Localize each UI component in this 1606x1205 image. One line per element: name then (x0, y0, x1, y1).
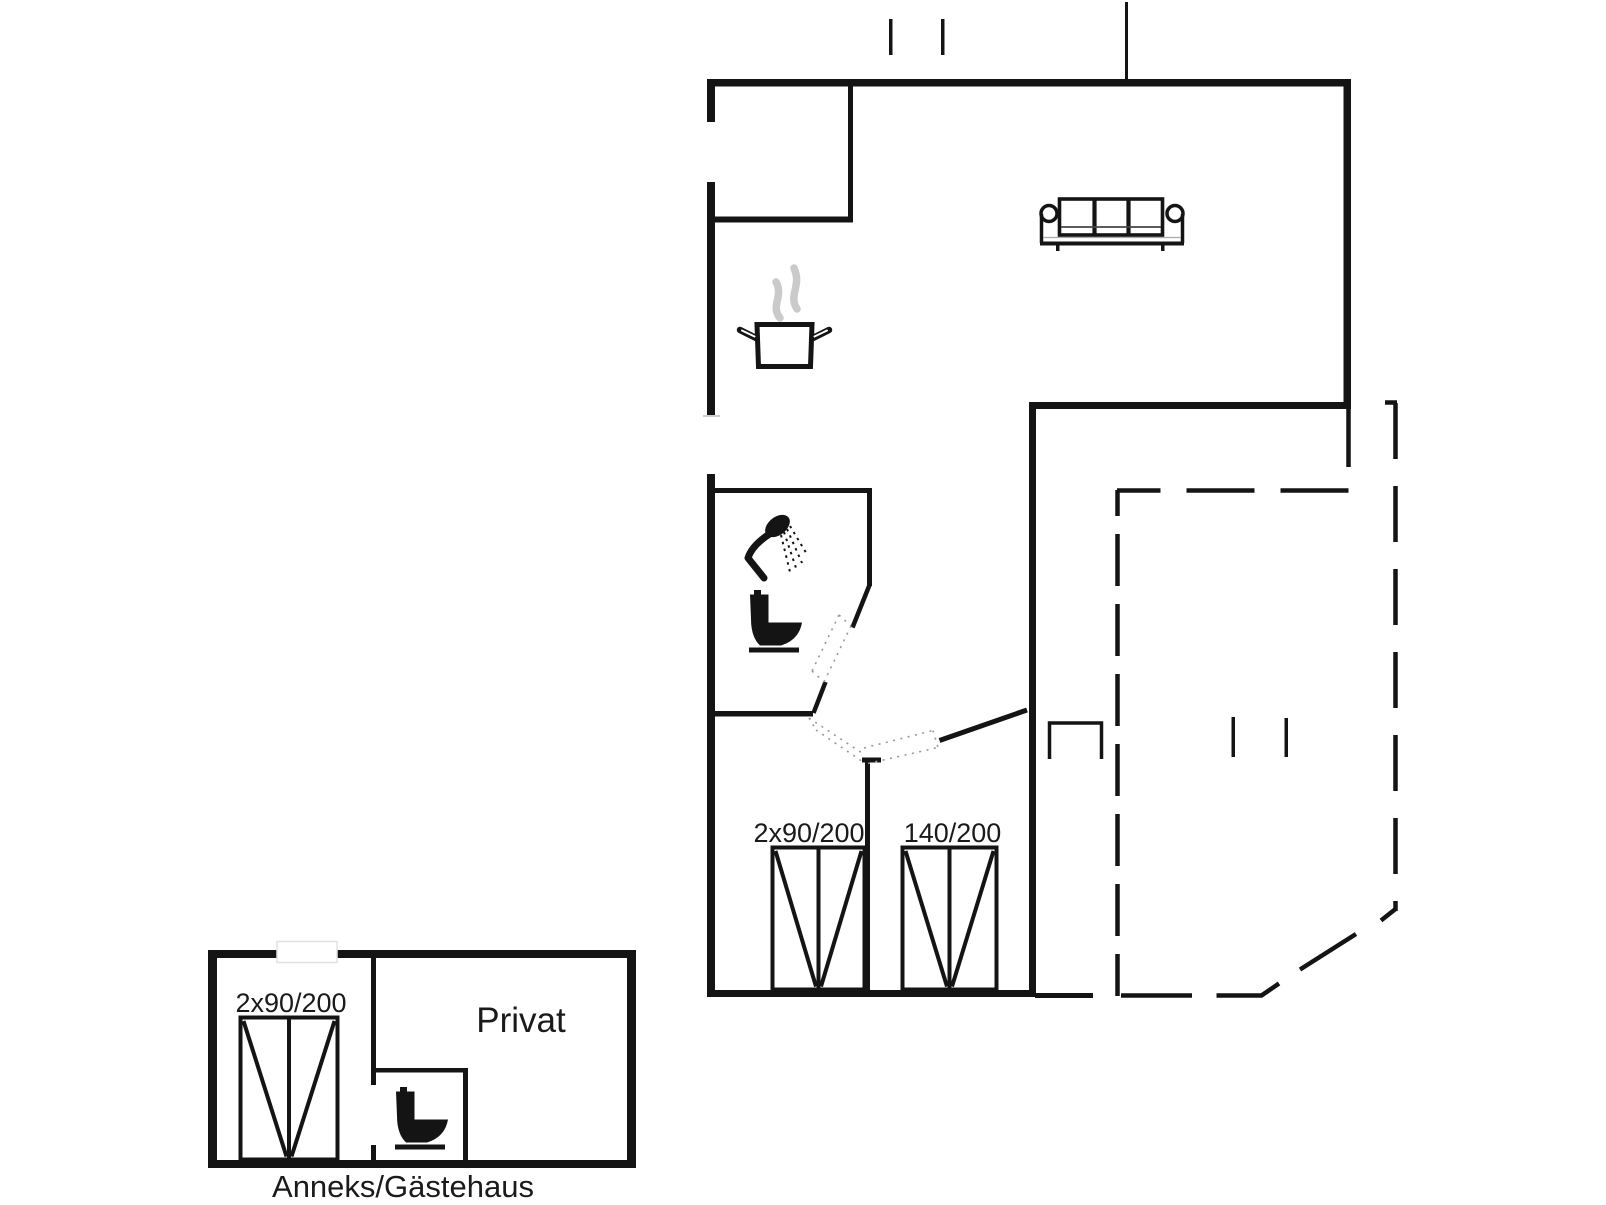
svg-text:2x90/200: 2x90/200 (235, 988, 346, 1018)
svg-text:Anneks/Gästehaus: Anneks/Gästehaus (272, 1169, 534, 1204)
svg-text:2x90/200: 2x90/200 (753, 818, 864, 848)
svg-text:Privat: Privat (476, 1001, 566, 1040)
svg-text:140/200: 140/200 (904, 818, 1002, 848)
